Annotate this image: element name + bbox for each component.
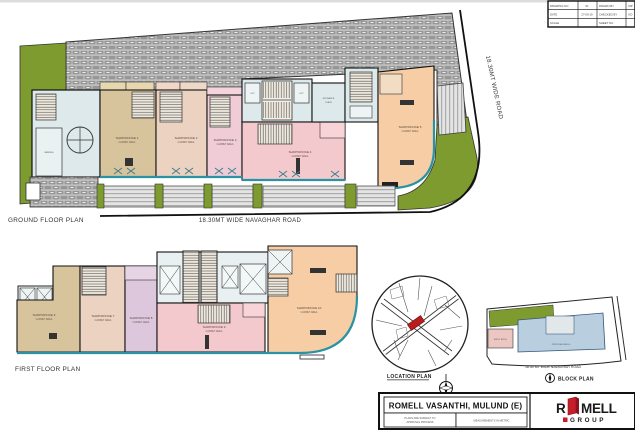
side-walkway — [437, 83, 466, 135]
service-room — [125, 266, 157, 280]
ground-floor-title: GROUND FLOOR PLAN — [8, 217, 84, 224]
project-title: ROMELL VASANTHI, MULUND (E) — [389, 402, 523, 411]
shop-3-area: CARPET AREA — [217, 143, 234, 146]
label-underline — [387, 380, 429, 381]
shop-3-label: SHOP/OFFICE 3 — [214, 138, 237, 142]
navaghar-road-label: 18.30MT WIDE NAVAGHAR ROAD — [199, 218, 302, 224]
block-side-road-label: 18.30 MT WIDE RD — [617, 306, 621, 325]
logo-text-r: R — [556, 401, 566, 416]
entry-ramps — [97, 184, 395, 208]
entrance-lobby-label: ENTRANCE — [323, 97, 335, 100]
block-existing-label: EXIST. BLDG. — [494, 339, 508, 341]
note-left-line1: PLANS ARE SUBJECT TO — [404, 416, 435, 420]
logo-text-mell: MELL — [581, 401, 617, 416]
shop-4-area: CARPET AREA — [292, 155, 309, 158]
stair-flight — [132, 92, 154, 118]
shop-6 — [17, 266, 80, 352]
shop-10-label: SHOP/OFFICE 10 — [297, 306, 322, 310]
logo-pillar-side — [576, 397, 579, 415]
column — [49, 333, 57, 339]
note-left-line2: APPROVAL PROCESS — [406, 420, 433, 424]
logo-pillar-icon — [568, 397, 576, 415]
note-right: MEASUREMENTS IN METRIC — [474, 419, 510, 423]
shop-1-label: SHOP/OFFICE 1 — [116, 136, 139, 140]
service-room — [207, 87, 242, 95]
stair-flight — [160, 92, 182, 122]
shop-7-area: CARPET AREA — [95, 319, 112, 322]
shop-10-area: CARPET AREA — [301, 311, 318, 314]
stair-flight — [263, 102, 291, 118]
compass-icon — [546, 374, 555, 383]
rev-cell: DATE — [550, 12, 557, 16]
rev-cell: CHECKED BY — [599, 12, 617, 16]
location-plan-label: LOCATION PLAN — [387, 374, 432, 380]
service-room — [380, 74, 402, 94]
service-room — [320, 122, 345, 138]
meter-box — [26, 183, 40, 200]
stair-flight — [258, 124, 292, 144]
shop-5-area: CARPET AREA — [402, 130, 419, 133]
rev-cell: MP — [628, 4, 632, 8]
side-road-label: 18.30MT WIDE ROAD — [484, 55, 503, 120]
column — [205, 335, 209, 349]
stilt-room-label: PARKING — [44, 151, 54, 154]
duct-box — [268, 250, 292, 274]
entry-step — [300, 355, 324, 359]
lift-label: LIFT — [250, 93, 255, 95]
stair-shaft — [201, 251, 217, 303]
block-building-core — [546, 316, 574, 334]
rev-cell: KD — [629, 12, 633, 16]
wall-segment — [310, 330, 326, 335]
rev-cell: SHEET NO — [599, 21, 614, 25]
revision-table: DRAWING NO 01 DRAWN BY MP DATE 27-09-19 … — [548, 1, 635, 27]
stair-flight — [36, 94, 56, 120]
wall-segment — [400, 100, 414, 105]
block-plan: PROPOSED BLDG. EXIST. BLDG. 18.30 MT WID… — [487, 296, 626, 383]
service-room — [243, 303, 265, 317]
entrance-lobby-label2: LOBBY — [325, 102, 333, 104]
lift-label: LIFT — [299, 93, 304, 95]
shop-8-label: SHOP/OFFICE 8 — [130, 316, 153, 320]
rev-cell: 01 — [585, 4, 589, 8]
ground-floor-plan: PARKING SHOP/OFFICE 1 CARPET AREA SHOP/O… — [8, 10, 504, 224]
shop-8-area: CARPET AREA — [133, 321, 150, 324]
wall-segment — [310, 268, 326, 273]
drawing-sheet: PARKING SHOP/OFFICE 1 CARPET AREA SHOP/O… — [0, 0, 635, 430]
shop-6-label: SHOP/OFFICE 6 — [33, 313, 56, 317]
stair-flight — [336, 274, 357, 292]
stair-flight — [198, 305, 230, 323]
logo-text-group: GROUP — [570, 417, 606, 424]
stair-flight — [82, 267, 106, 295]
north-arrow-icon — [440, 374, 453, 395]
duct-box — [160, 266, 180, 294]
shop-5-label: SHOP/OFFICE 5 — [399, 125, 422, 129]
lift-shaft — [350, 106, 372, 118]
location-plan: LOCATION PLAN — [372, 276, 468, 380]
column — [125, 158, 133, 166]
shop-2-label: SHOP/OFFICE 2 — [175, 136, 198, 140]
title-block: ROMELL VASANTHI, MULUND (E) PLANS ARE SU… — [379, 393, 635, 429]
shop-9-area: CARPET AREA — [206, 330, 223, 333]
shop-6-area: CARPET AREA — [36, 318, 53, 321]
architectural-drawing: PARKING SHOP/OFFICE 1 CARPET AREA SHOP/O… — [0, 0, 635, 430]
stair-flight — [210, 97, 230, 127]
block-plan-label: BLOCK PLAN — [558, 377, 594, 383]
first-floor-title: FIRST FLOOR PLAN — [15, 366, 80, 373]
note-cell-left — [384, 413, 456, 427]
sheet-top-edge — [0, 0, 635, 3]
shop-1-area: CARPET AREA — [119, 141, 136, 144]
rev-cell: DRAWING NO — [550, 4, 569, 8]
block-building-label: PROPOSED BLDG. — [552, 344, 571, 346]
shop-7-label: SHOP/OFFICE 7 — [92, 314, 115, 318]
wall-segment — [400, 160, 414, 165]
rev-cell: SCALE — [550, 21, 559, 25]
stair-shaft — [183, 251, 199, 303]
stair-flight — [263, 82, 291, 98]
rev-cell: 27-09-19 — [581, 12, 593, 16]
logo-square — [563, 418, 568, 423]
shop-9-label: SHOP/OFFICE 9 — [203, 325, 226, 329]
rev-cell: DRAWN BY — [599, 4, 614, 8]
block-road-label: 18.30 MT WIDE NAVAGHAR ROAD — [525, 365, 581, 369]
shop-4-label: SHOP/OFFICE 4 — [289, 150, 312, 154]
shop-2-area: CARPET AREA — [178, 141, 195, 144]
stair-flight — [350, 72, 372, 102]
stair-flight — [268, 278, 288, 296]
first-floor-plan: SHOP/OFFICE 6 CARPET AREA SHOP/OFFICE 7 … — [15, 246, 357, 373]
